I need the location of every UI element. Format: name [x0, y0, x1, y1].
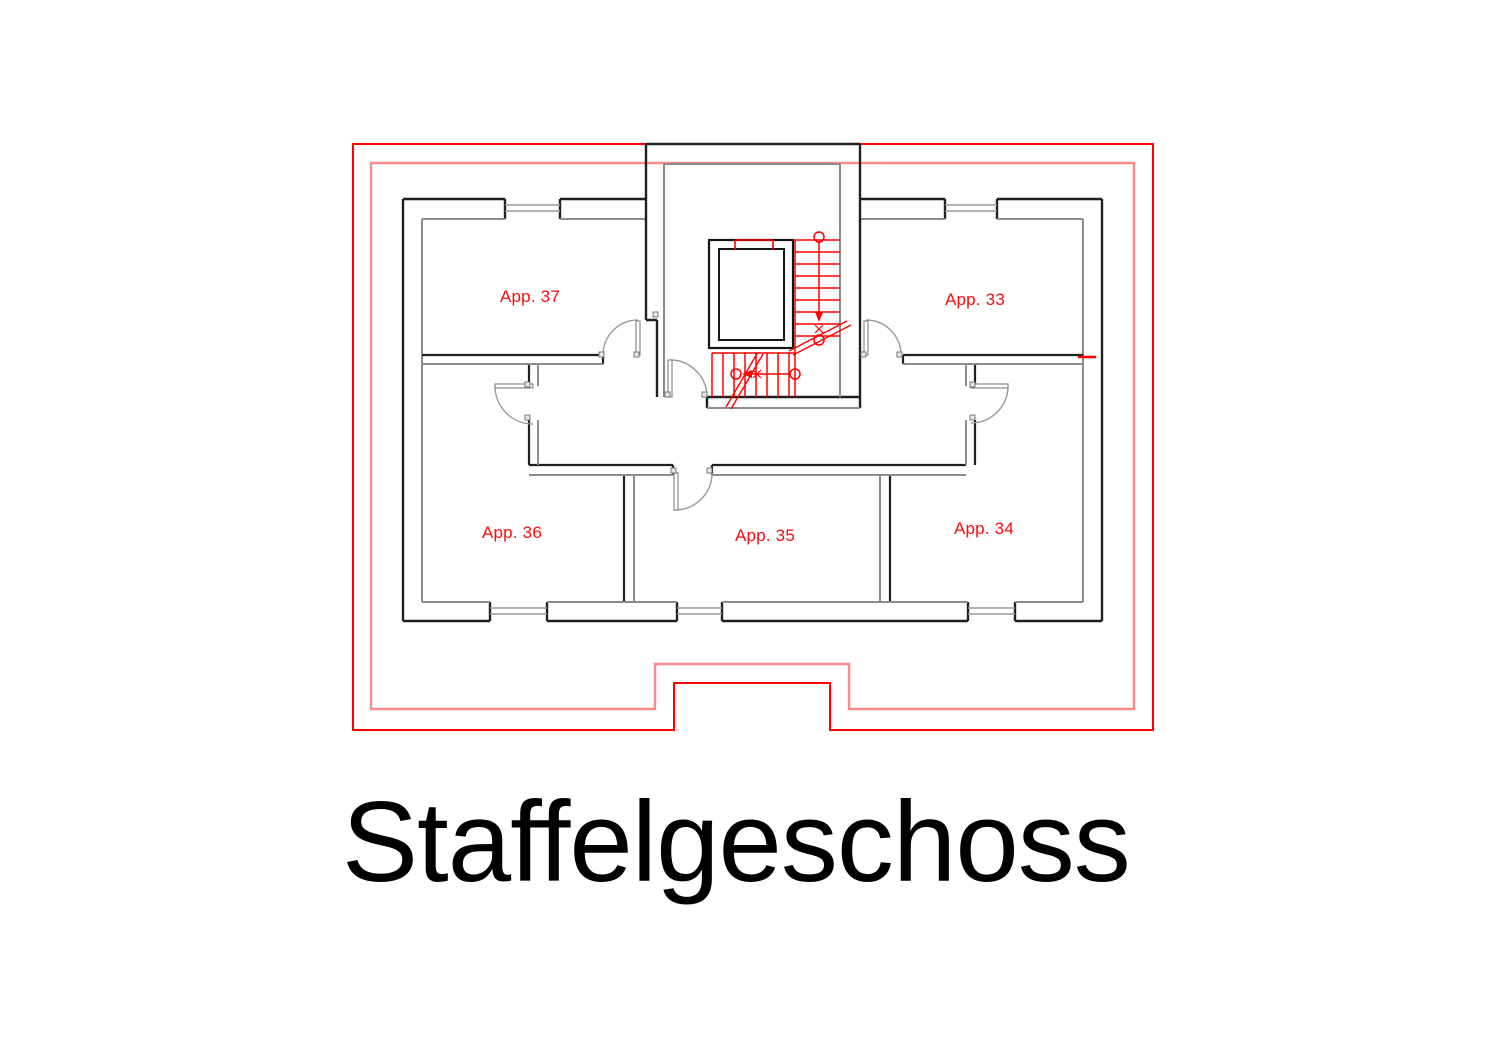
roof-outline-inner: [371, 163, 1134, 709]
door-leaf-app34: [971, 384, 1008, 388]
apartment-label-app-37: App. 37: [500, 287, 560, 307]
roof-outline-outer: [353, 144, 1153, 730]
windows: [490, 205, 1015, 614]
drawing-sheet: App. 37 App. 33 App. 36 App. 35 App. 34 …: [0, 0, 1488, 1063]
door-arc-stairwell: [670, 360, 707, 397]
drawing-title: Staffelgeschoss: [342, 786, 1130, 900]
door-arc-app37: [603, 320, 638, 355]
elevator: [709, 240, 793, 348]
apartment-label-app-35: App. 35: [735, 526, 795, 546]
apartment-label-app-36: App. 36: [482, 523, 542, 543]
door-leaf-app37: [636, 321, 640, 355]
apartment-label-app-33: App. 33: [945, 290, 1005, 310]
door-leaf-stairwell: [668, 360, 672, 397]
apartment-label-app-34: App. 34: [954, 519, 1014, 539]
door-arc-app34: [971, 386, 1008, 423]
doors: [495, 312, 1008, 510]
interior-walls: [422, 355, 1096, 601]
door-arc-app33: [866, 320, 901, 355]
door-leaf-app33: [864, 321, 868, 355]
door-leaf-app35: [674, 473, 678, 510]
stairs: [712, 232, 851, 409]
door-arc-app35: [675, 473, 712, 510]
exterior-walls: [403, 199, 1102, 621]
